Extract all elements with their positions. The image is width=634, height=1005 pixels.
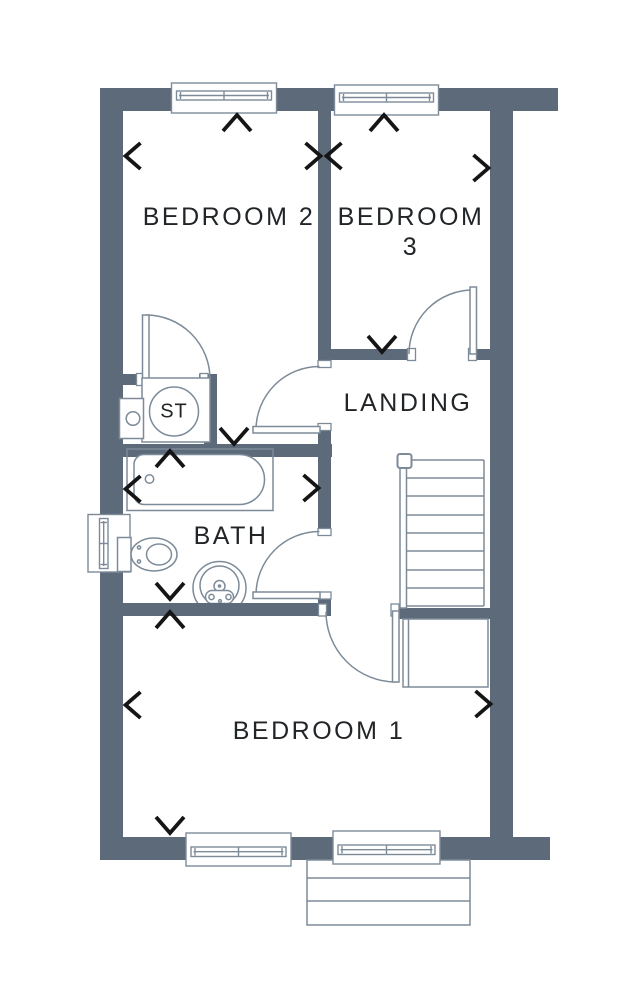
- window-bedroom3: [335, 85, 439, 115]
- wall-bed2-bed3-divider: [318, 110, 331, 365]
- marker-up-bedroom2: [223, 115, 251, 131]
- room-label-bedroom3: BEDROOM 3: [338, 202, 485, 262]
- room-label-bedroom3-line1: BEDROOM: [338, 202, 485, 232]
- wall-storage-left: [100, 374, 142, 385]
- door-storage: [143, 315, 211, 379]
- room-label-bedroom1: BEDROOM 1: [233, 716, 406, 746]
- room-label-bedroom3-line2: 3: [338, 232, 485, 262]
- wall-bed1-top: [100, 603, 322, 616]
- floor-plan-drawing: [0, 0, 634, 1005]
- marker-right-bedroom1: [476, 691, 491, 717]
- window-bedroom1-right: [333, 831, 440, 864]
- marker-left-bedroom2: [126, 143, 141, 169]
- wall-bottom: [100, 837, 550, 860]
- room-label-storage: ST: [160, 401, 188, 424]
- stair-newel-post: [398, 454, 412, 468]
- wall-cabinet: [120, 399, 144, 439]
- marker-up-bedroom3: [370, 115, 398, 131]
- wall-landing-mid: [318, 428, 331, 532]
- room-label-bath: BATH: [194, 521, 269, 551]
- door-bedroom2: [253, 367, 320, 434]
- window-bedroom2: [172, 83, 277, 113]
- window-bedroom1-left: [186, 833, 291, 866]
- stairs: [398, 454, 489, 687]
- room-label-landing: LANDING: [344, 388, 473, 418]
- bathtub: [127, 449, 273, 511]
- stair-bulkhead-outline: [403, 619, 488, 687]
- marker-right-bath: [304, 475, 319, 501]
- porch-roof-outline: [307, 860, 470, 925]
- marker-left-bedroom1: [126, 692, 141, 718]
- wall-right: [490, 110, 513, 860]
- toilet: [118, 538, 178, 572]
- marker-down-bedroom1: [156, 817, 184, 833]
- door-bedroom1: [326, 611, 399, 682]
- wall-left: [100, 88, 123, 860]
- wall-top: [100, 88, 558, 111]
- room-label-bedroom2: BEDROOM 2: [143, 202, 316, 232]
- wall-bed3-bottom: [318, 349, 411, 360]
- stair-handrail: [400, 460, 407, 608]
- wall-stair-foot: [398, 608, 490, 619]
- marker-down-bath-wall: [156, 583, 184, 599]
- door-bedroom3: [409, 287, 477, 354]
- marker-down-hall: [220, 428, 248, 444]
- floor-plan: BEDROOM 2 BEDROOM 3 LANDING BATH BEDROOM…: [0, 0, 634, 1005]
- marker-right-bedroom3: [474, 155, 489, 181]
